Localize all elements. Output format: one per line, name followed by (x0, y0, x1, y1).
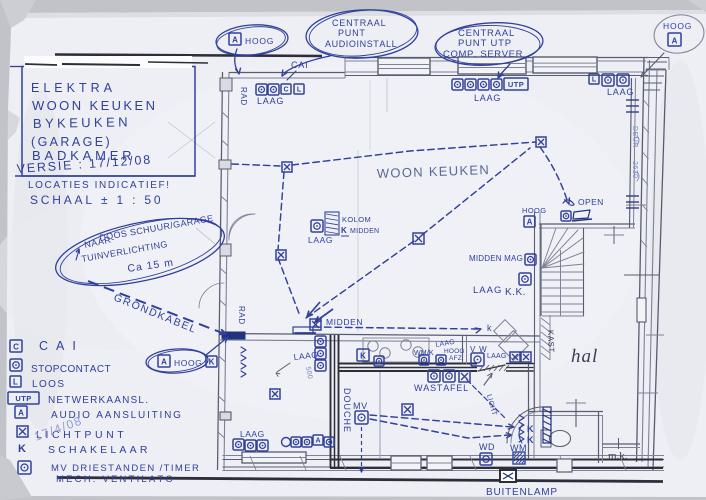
svg-text:K: K (341, 226, 347, 235)
svg-text:A: A (527, 217, 533, 226)
svg-text:L: L (297, 86, 302, 93)
svg-text:LAAG: LAAG (474, 93, 501, 103)
svg-text:LAAG: LAAG (487, 353, 506, 360)
svg-text:A: A (315, 437, 320, 444)
svg-text:LAAG: LAAG (308, 235, 333, 245)
svg-text:K: K (209, 357, 215, 366)
svg-text:MECH. VENTILATO: MECH. VENTILATO (56, 474, 175, 485)
svg-text:LAAG: LAAG (473, 285, 502, 296)
svg-text:MIDDEN: MIDDEN (326, 317, 363, 327)
svg-text:STOPCONTACT: STOPCONTACT (31, 364, 111, 375)
svg-text:ELEKTRA: ELEKTRA (31, 81, 116, 95)
svg-text:K: K (527, 435, 534, 445)
svg-text:CAI: CAI (291, 60, 308, 70)
svg-text:A: A (672, 36, 678, 45)
svg-text:AFZ.: AFZ. (449, 355, 464, 362)
svg-text:OPEN: OPEN (578, 197, 604, 207)
svg-text:K.K.: K.K. (505, 287, 526, 298)
svg-text:C: C (13, 342, 19, 351)
svg-text:LAAG: LAAG (240, 429, 265, 439)
svg-text:LOCATIES INDICATIEF!: LOCATIES INDICATIEF! (28, 180, 171, 191)
svg-text:DOUCHE: DOUCHE (342, 388, 352, 433)
svg-text:COMP. SERVER: COMP. SERVER (443, 49, 523, 60)
svg-text:(GARAGE): (GARAGE) (31, 135, 112, 149)
svg-text:A: A (161, 357, 167, 366)
svg-text:RAD: RAD (237, 306, 246, 325)
svg-text:HOOG: HOOG (174, 358, 202, 368)
svg-text:UTP: UTP (15, 394, 31, 403)
svg-text:PUNT: PUNT (338, 28, 366, 38)
svg-text:NETWERKAANSL.: NETWERKAANSL. (48, 395, 149, 406)
svg-text:L: L (13, 377, 18, 386)
svg-text:LAAG: LAAG (607, 87, 634, 97)
svg-text:SCHAKELAAR: SCHAKELAAR (48, 444, 151, 456)
svg-text:MIDDEN: MIDDEN (350, 228, 379, 235)
svg-text:WD: WD (479, 442, 495, 452)
svg-text:A: A (232, 35, 238, 44)
svg-text:KOLOM: KOLOM (342, 215, 371, 224)
svg-text:LAAG: LAAG (257, 96, 284, 106)
svg-text:CAI: CAI (39, 339, 84, 353)
svg-text:2630: 2630 (631, 161, 638, 179)
svg-text:MIDDEN MAG: MIDDEN MAG (469, 254, 523, 263)
svg-text:K: K (18, 443, 26, 455)
svg-text:WOON KEUKEN: WOON KEUKEN (32, 98, 157, 113)
svg-text:AUDIOINSTALL: AUDIOINSTALL (325, 39, 397, 49)
svg-text:L: L (592, 76, 597, 83)
svg-text:K: K (527, 424, 534, 434)
svg-text:A: A (18, 408, 24, 417)
svg-text:LOOS: LOOS (32, 379, 65, 390)
svg-text:MV: MV (353, 401, 368, 411)
svg-text:WM/K: WM/K (414, 350, 434, 357)
svg-text:HOOG: HOOG (522, 206, 547, 215)
svg-text:KAST: KAST (546, 330, 556, 353)
svg-text:UTP: UTP (508, 80, 524, 89)
svg-text:CENTRAAL: CENTRAAL (332, 18, 386, 28)
svg-text:k: k (487, 323, 492, 333)
svg-text:K: K (360, 351, 366, 360)
svg-text:BYKEUKEN: BYKEUKEN (33, 114, 131, 131)
svg-text:m.k.: m.k. (608, 450, 628, 462)
svg-text:HOOG: HOOG (663, 21, 692, 31)
svg-text:HOOG: HOOG (444, 348, 465, 355)
svg-text:C: C (283, 86, 288, 93)
svg-text:SCHAAL ± 1 : 50: SCHAAL ± 1 : 50 (30, 193, 163, 207)
svg-text:HOOG: HOOG (245, 36, 274, 46)
svg-text:PUNT UTP: PUNT UTP (458, 38, 512, 49)
svg-text:RAD: RAD (239, 87, 248, 106)
svg-text:hal: hal (571, 346, 598, 367)
svg-text:MV DRIESTANDEN /TIMER: MV DRIESTANDEN /TIMER (51, 463, 200, 474)
svg-text:WASTAFEL: WASTAFEL (414, 383, 469, 393)
svg-text:BUITENLAMP: BUITENLAMP (486, 487, 558, 498)
